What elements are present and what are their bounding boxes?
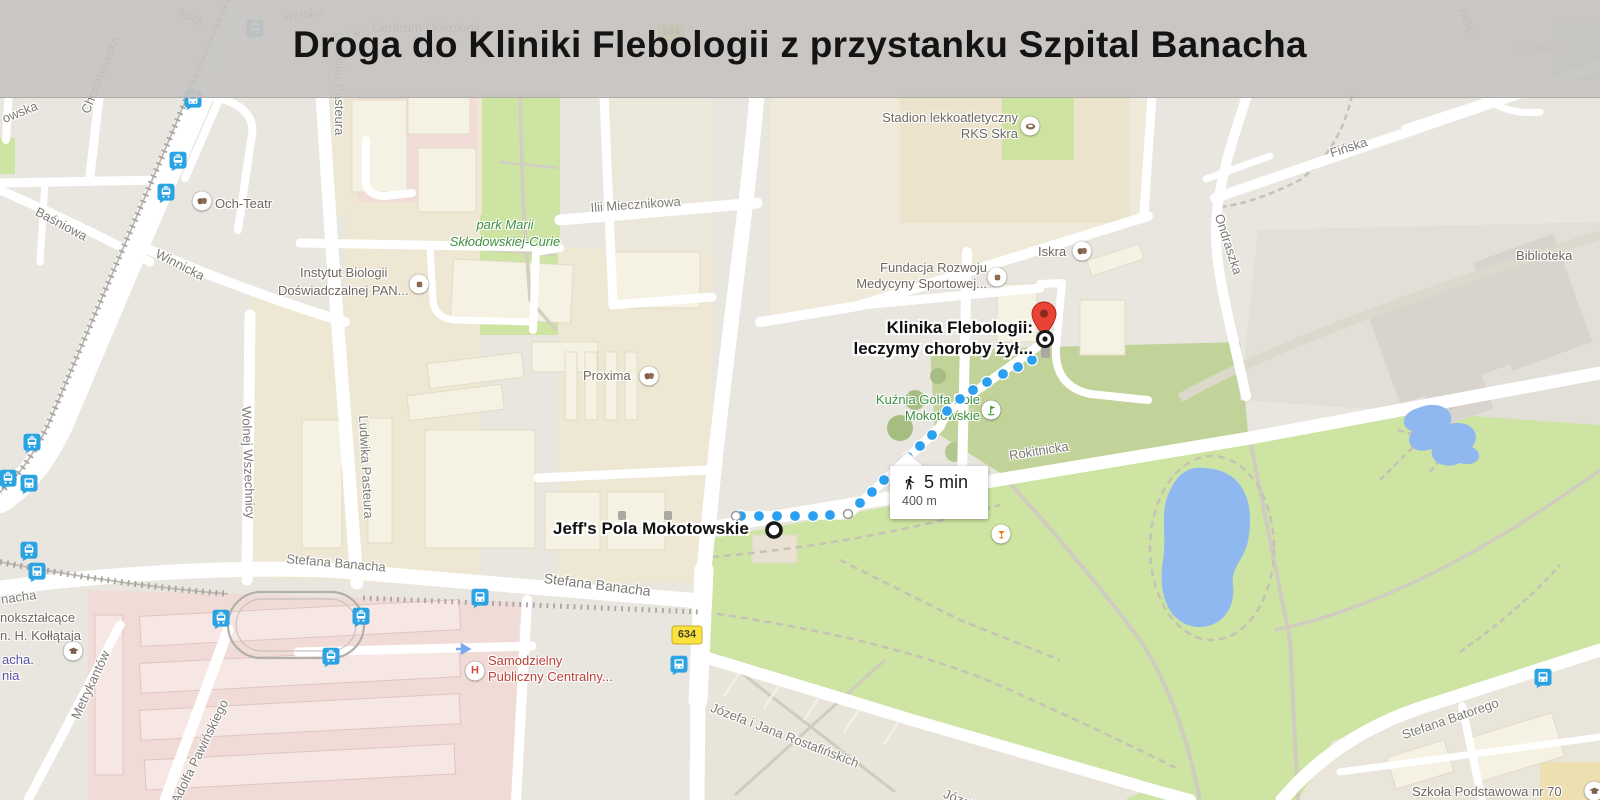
entrance-marker bbox=[1041, 347, 1050, 358]
theater-masks-icon[interactable] bbox=[1073, 242, 1092, 261]
place-label-szpital-line1[interactable]: Samodzielny bbox=[488, 653, 562, 668]
place-label-kuznia-line2[interactable]: Mokotowskie bbox=[856, 408, 980, 423]
tram-stop-icon[interactable] bbox=[170, 152, 187, 172]
bus-stop-icon[interactable] bbox=[671, 656, 688, 676]
place-label-fundacja-line2[interactable]: Medycyny Sportowej... bbox=[830, 276, 987, 291]
map-canvas[interactable]: Stefana Banacha Stefana Banacha nacha Il… bbox=[0, 0, 1600, 800]
place-label-park-line2[interactable]: Skłodowskiej-Curie bbox=[435, 234, 575, 249]
tram-stop-icon[interactable] bbox=[158, 184, 175, 204]
place-label-kuznia-line1[interactable]: Kuźnia Golfa Pole bbox=[856, 392, 980, 407]
place-label-biblioteka[interactable]: Biblioteka bbox=[1516, 248, 1572, 263]
cocktail-icon[interactable] bbox=[992, 525, 1011, 544]
stadium-icon[interactable] bbox=[1021, 117, 1040, 136]
destination-target-marker[interactable] bbox=[1038, 332, 1053, 347]
theater-masks-icon[interactable] bbox=[640, 367, 659, 386]
transit-stop-label-line2[interactable]: nia bbox=[2, 668, 19, 683]
route-duration: 5 min bbox=[924, 472, 968, 493]
place-label-liceum-line1[interactable]: nokształcące bbox=[0, 610, 75, 625]
transit-stop-label-line1[interactable]: acha. bbox=[2, 652, 34, 667]
place-label-instytut-line1[interactable]: Instytut Biologii bbox=[300, 265, 387, 280]
place-label-proxima[interactable]: Proxima bbox=[583, 368, 631, 383]
route-info-tooltip[interactable]: 5 min 400 m bbox=[890, 466, 988, 519]
building-poi-icon[interactable] bbox=[410, 275, 429, 294]
route-start-marker[interactable] bbox=[767, 523, 781, 537]
place-label-szkola[interactable]: Szkoła Podstawowa nr 70 bbox=[1412, 784, 1562, 799]
title-banner: Droga do Kliniki Flebologii z przystanku… bbox=[0, 0, 1600, 98]
theater-masks-icon[interactable] bbox=[193, 192, 212, 211]
place-label-och-teatr[interactable]: Och-Teatr bbox=[215, 196, 272, 211]
tram-stop-icon[interactable] bbox=[21, 542, 38, 562]
hospital-icon[interactable]: H bbox=[466, 662, 485, 681]
tram-stop-icon[interactable] bbox=[0, 470, 17, 490]
golf-icon[interactable] bbox=[982, 401, 1001, 420]
route-distance: 400 m bbox=[902, 494, 978, 508]
place-label-liceum-line2[interactable]: n. H. Kołłątaja bbox=[0, 628, 81, 643]
tram-stop-icon[interactable] bbox=[24, 434, 41, 454]
place-label-stadion-line1[interactable]: Stadion lekkoatletyczny bbox=[850, 110, 1018, 125]
route-start-label[interactable]: Jeff's Pola Mokotowskie bbox=[553, 519, 749, 539]
route-dest-label-line2[interactable]: leczymy choroby żył... bbox=[830, 339, 1033, 359]
place-label-park-line1[interactable]: park Marii bbox=[435, 217, 575, 232]
walking-person-icon bbox=[902, 473, 917, 492]
bus-stop-icon[interactable] bbox=[1535, 669, 1552, 689]
tram-stop-icon[interactable] bbox=[353, 608, 370, 628]
building-poi-icon[interactable] bbox=[988, 268, 1007, 287]
school-icon[interactable] bbox=[1585, 782, 1600, 800]
school-icon[interactable] bbox=[64, 642, 83, 661]
route-dest-label-line1[interactable]: Klinika Flebologii: bbox=[830, 318, 1033, 338]
place-label-fundacja-line1[interactable]: Fundacja Rozwoju bbox=[830, 260, 987, 275]
place-label-iskra[interactable]: Iskra bbox=[1038, 244, 1066, 259]
tram-stop-icon[interactable] bbox=[213, 610, 230, 630]
page-title: Droga do Kliniki Flebologii z przystanku… bbox=[0, 24, 1600, 66]
bus-stop-icon[interactable] bbox=[472, 589, 489, 609]
place-label-stadion-line2[interactable]: RKS Skra bbox=[850, 126, 1018, 141]
map-base-layer bbox=[0, 0, 1600, 800]
road-shield-634: 634 bbox=[672, 626, 703, 645]
bus-stop-icon[interactable] bbox=[29, 563, 46, 583]
place-label-instytut-line2[interactable]: Doświadczalnej PAN... bbox=[278, 283, 409, 298]
tram-stop-icon[interactable] bbox=[323, 648, 340, 668]
bus-stop-icon[interactable] bbox=[21, 475, 38, 495]
place-label-szpital-line2[interactable]: Publiczny Centralny... bbox=[488, 669, 613, 684]
